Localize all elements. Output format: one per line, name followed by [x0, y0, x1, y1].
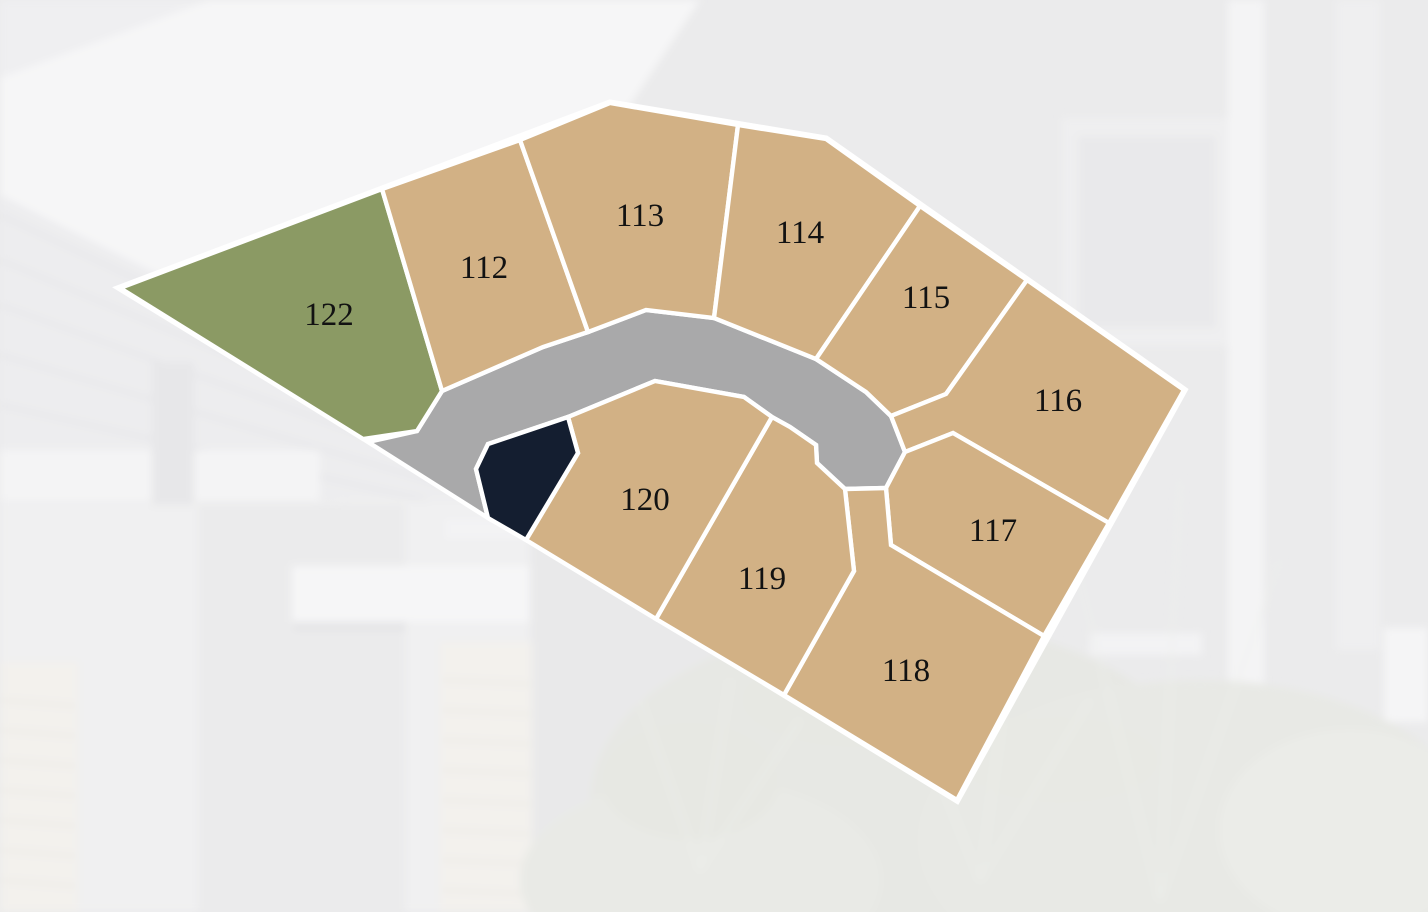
svg-text:114: 114	[776, 215, 824, 251]
svg-text:112: 112	[460, 250, 508, 286]
svg-text:122: 122	[304, 297, 354, 333]
svg-text:113: 113	[616, 198, 664, 234]
svg-text:120: 120	[620, 482, 670, 518]
svg-text:118: 118	[882, 653, 930, 689]
svg-text:119: 119	[738, 561, 786, 597]
svg-text:117: 117	[969, 513, 1017, 549]
svg-text:115: 115	[902, 280, 950, 316]
svg-text:116: 116	[1034, 383, 1082, 419]
